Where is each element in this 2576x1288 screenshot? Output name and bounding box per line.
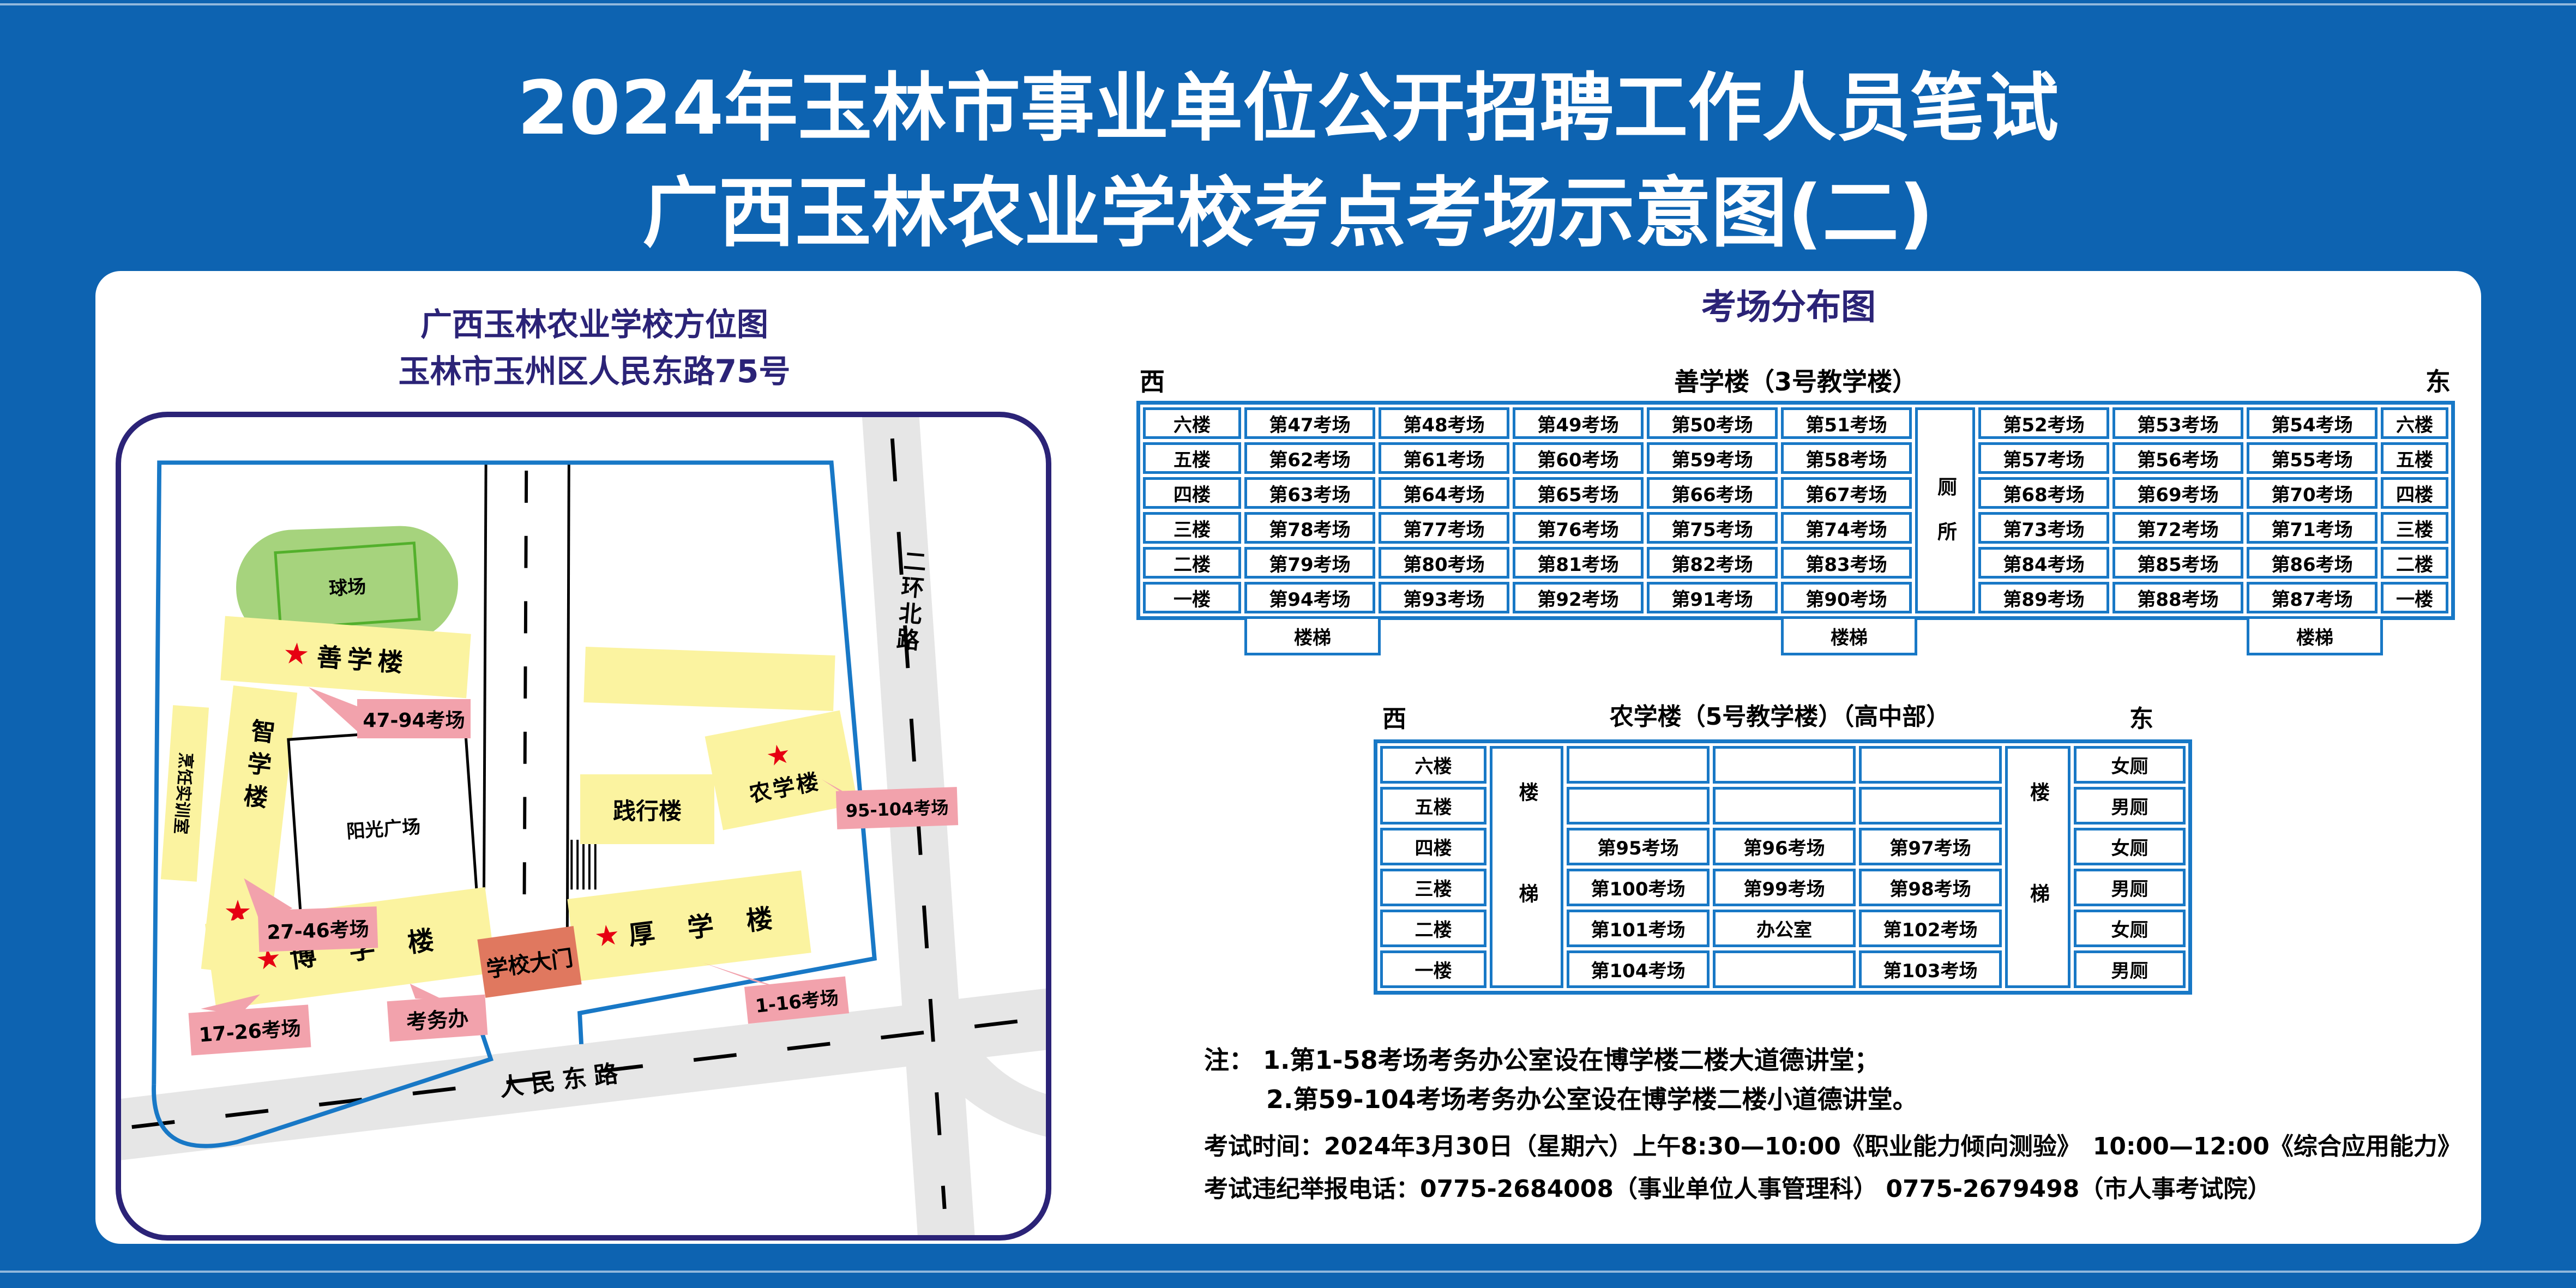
room-cell: [1713, 746, 1856, 784]
range-shanxue: 47-94考场: [357, 699, 471, 738]
room-cell: 第74考场: [1781, 512, 1912, 544]
room-cell: 第72考场: [2112, 512, 2243, 544]
exam-office-label: 考务办: [405, 1001, 470, 1036]
t1-stairs-mid: 楼梯: [1781, 616, 1917, 655]
room-cell: 第73考场: [1978, 512, 2109, 544]
room-cell: 第62考场: [1244, 442, 1375, 474]
toilet-cell: 男厕: [2074, 869, 2186, 906]
room-cell: 第85考场: [2112, 547, 2243, 579]
t1-floor: 二楼: [1143, 547, 1241, 579]
t2-floor: 五楼: [1380, 787, 1486, 824]
poster: { "poster": { "title_line1": "2024年玉林市事业…: [0, 0, 2576, 1288]
campus-map: 球场 ★ 善学楼 烹饪实训室 智学楼 ★ 阳光广场 践行楼 ★ 农学楼 ★ 厚 …: [116, 412, 1051, 1241]
t2-stairs-left: 楼梯: [1490, 746, 1563, 988]
t2-floor: 一楼: [1380, 950, 1486, 988]
toilet-cell: 女厕: [2074, 746, 2186, 784]
room-cell: 第82考场: [1647, 547, 1778, 579]
room-cell: 第94考场: [1244, 582, 1375, 613]
room-cell: 第50考场: [1647, 407, 1778, 439]
t2-floor: 二楼: [1380, 910, 1486, 947]
room-cell: 第70考场: [2247, 477, 2378, 509]
room-cell: 第58考场: [1781, 442, 1912, 474]
t1-floor: 六楼: [1143, 407, 1241, 439]
room-cell: 第98考场: [1859, 869, 2002, 906]
room-cell: 第80考场: [1379, 547, 1509, 579]
t1-floor: 四楼: [2381, 477, 2448, 509]
poster-title-line2: 广西玉林农业学校考点考场示意图(二): [0, 152, 2576, 262]
room-cell: [1567, 787, 1710, 824]
room-cell: 第102考场: [1859, 910, 2002, 947]
room-cell: 第100考场: [1567, 869, 1710, 906]
t1-floor: 六楼: [2381, 407, 2448, 439]
room-cell: 第47考场: [1244, 407, 1375, 439]
t1-east: 东: [2425, 362, 2451, 398]
room-cell: 第86考场: [2247, 547, 2378, 579]
room-cell: 第65考场: [1513, 477, 1644, 509]
room-cell: 第81考场: [1513, 547, 1644, 579]
report-hotline: 考试违纪举报电话：0775-2684008（事业单位人事管理科） 0775-26…: [1204, 1169, 2271, 1204]
map-title-line1: 广西玉林农业学校方位图: [115, 299, 1074, 345]
room-cell: 第90考场: [1781, 582, 1912, 613]
t1-stairs-left: 楼梯: [1244, 616, 1381, 655]
room-cell: 第96考场: [1713, 828, 1856, 865]
room-cell: 第63考场: [1244, 477, 1375, 509]
room-cell: 第92考场: [1513, 582, 1644, 613]
toilet-cell: 女厕: [2074, 910, 2186, 947]
room-cell: 第59考场: [1647, 442, 1778, 474]
room-cell: 第48考场: [1379, 407, 1509, 439]
room-cell: 第71考场: [2247, 512, 2378, 544]
bottom-edge-rule: [0, 1271, 2576, 1273]
room-cell: 第57考场: [1978, 442, 2109, 474]
range-zhixue-label: 27-46考场: [267, 913, 370, 945]
room-cell: 第89考场: [1978, 582, 2109, 613]
room-cell: 第87考场: [2247, 582, 2378, 613]
room-cell: [1859, 787, 2002, 824]
toilet-cell: 男厕: [2074, 787, 2186, 824]
t1-floor: 三楼: [1143, 512, 1241, 544]
range-boxue-label: 17-26考场: [198, 1013, 302, 1048]
room-cell: 第55考场: [2247, 442, 2378, 474]
poster-title-line1: 2024年玉林市事业单位公开招聘工作人员笔试: [0, 48, 2576, 155]
room-cell: 第76考场: [1513, 512, 1644, 544]
exam-office-box: 考务办: [387, 995, 488, 1042]
room-cell: 第68考场: [1978, 477, 2109, 509]
t1-floor: 五楼: [1143, 442, 1241, 474]
room-cell: 第61考场: [1379, 442, 1509, 474]
range-boxue: 17-26考场: [189, 1004, 311, 1055]
room-cell: 第103考场: [1859, 950, 2002, 988]
room-cell: 第49考场: [1513, 407, 1644, 439]
room-cell: 第54考场: [2247, 407, 2378, 439]
room-cell: 第104考场: [1567, 950, 1710, 988]
t2-floor: 四楼: [1380, 828, 1486, 865]
range-shanxue-label: 47-94考场: [363, 705, 465, 733]
room-cell: 第64考场: [1379, 477, 1509, 509]
t2-stairs-right: 楼梯: [2005, 746, 2071, 988]
t1-stairs-right: 楼梯: [2247, 616, 2383, 655]
room-cell: 第95考场: [1567, 828, 1710, 865]
room-cell: 第79考场: [1244, 547, 1375, 579]
room-cell: 第101考场: [1567, 910, 1710, 947]
t2-floor: 三楼: [1380, 869, 1486, 906]
room-cell: 第51考场: [1781, 407, 1912, 439]
table-nongxue: 楼梯 楼梯 六楼 女厕 五楼 男厕 四楼 第95考场 第96考场 第97考场 女…: [1374, 739, 2192, 995]
room-cell: 第97考场: [1859, 828, 2002, 865]
room-cell: 第56考场: [2112, 442, 2243, 474]
table-shanxue: 厕所 六楼 第47考场 第48考场 第49考场 第50考场 第51考场 第52考…: [1136, 401, 2455, 620]
t2-east: 东: [2129, 699, 2153, 734]
range-zhixue: 27-46考场: [258, 906, 378, 952]
range-nongxue-label: 95-104考场: [845, 794, 949, 823]
room-cell: 第84考场: [1978, 547, 2109, 579]
toilet-cell: 男厕: [2074, 950, 2186, 988]
room-cell: 第91考场: [1647, 582, 1778, 613]
note-line1: 注： 1.第1-58考场考务办公室设在博学楼二楼大道德讲堂；: [1204, 1040, 1880, 1076]
t2-building: 农学楼（5号教学楼）（高中部）: [1374, 697, 2186, 732]
toilet-cell: 女厕: [2074, 828, 2186, 865]
room-cell: [1859, 746, 2002, 784]
map-title-line2: 玉林市玉州区人民东路75号: [115, 346, 1074, 392]
t1-toilet-cell: 厕所: [1915, 407, 1975, 613]
t1-floor: 一楼: [2381, 582, 2448, 613]
room-cell: 第93考场: [1379, 582, 1509, 613]
t2-floor: 六楼: [1380, 746, 1486, 784]
room-cell: 第78考场: [1244, 512, 1375, 544]
room-cell: 第77考场: [1379, 512, 1509, 544]
room-cell: [1713, 950, 1856, 988]
room-cell: [1713, 787, 1856, 824]
top-edge-rule: [0, 3, 2576, 5]
room-cell: [1567, 746, 1710, 784]
room-cell: 第69考场: [2112, 477, 2243, 509]
room-cell: 第88考场: [2112, 582, 2243, 613]
range-houxue-label: 1-16考场: [754, 983, 839, 1018]
room-cell: 第67考场: [1781, 477, 1912, 509]
t1-floor: 三楼: [2381, 512, 2448, 544]
distribution-title: 考场分布图: [1636, 279, 1941, 329]
t1-floor: 一楼: [1143, 582, 1241, 613]
room-cell: 第75考场: [1647, 512, 1778, 544]
room-cell: 办公室: [1713, 910, 1856, 947]
t1-floor: 二楼: [2381, 547, 2448, 579]
t1-floor: 五楼: [2381, 442, 2448, 474]
room-cell: 第52考场: [1978, 407, 2109, 439]
room-cell: 第66考场: [1647, 477, 1778, 509]
exam-time: 考试时间：2024年3月30日（星期六）上午8:30—10:00《职业能力倾向测…: [1204, 1127, 2461, 1161]
room-cell: 第60考场: [1513, 442, 1644, 474]
note-line2: 2.第59-104考场考务办公室设在博学楼二楼小道德讲堂。: [1266, 1080, 1918, 1116]
range-nongxue: 95-104考场: [836, 787, 958, 829]
t1-floor: 四楼: [1143, 477, 1241, 509]
room-cell: 第53考场: [2112, 407, 2243, 439]
room-cell: 第83考场: [1781, 547, 1912, 579]
room-cell: 第99考场: [1713, 869, 1856, 906]
t1-building: 善学楼（3号教学楼）: [1136, 362, 2455, 398]
